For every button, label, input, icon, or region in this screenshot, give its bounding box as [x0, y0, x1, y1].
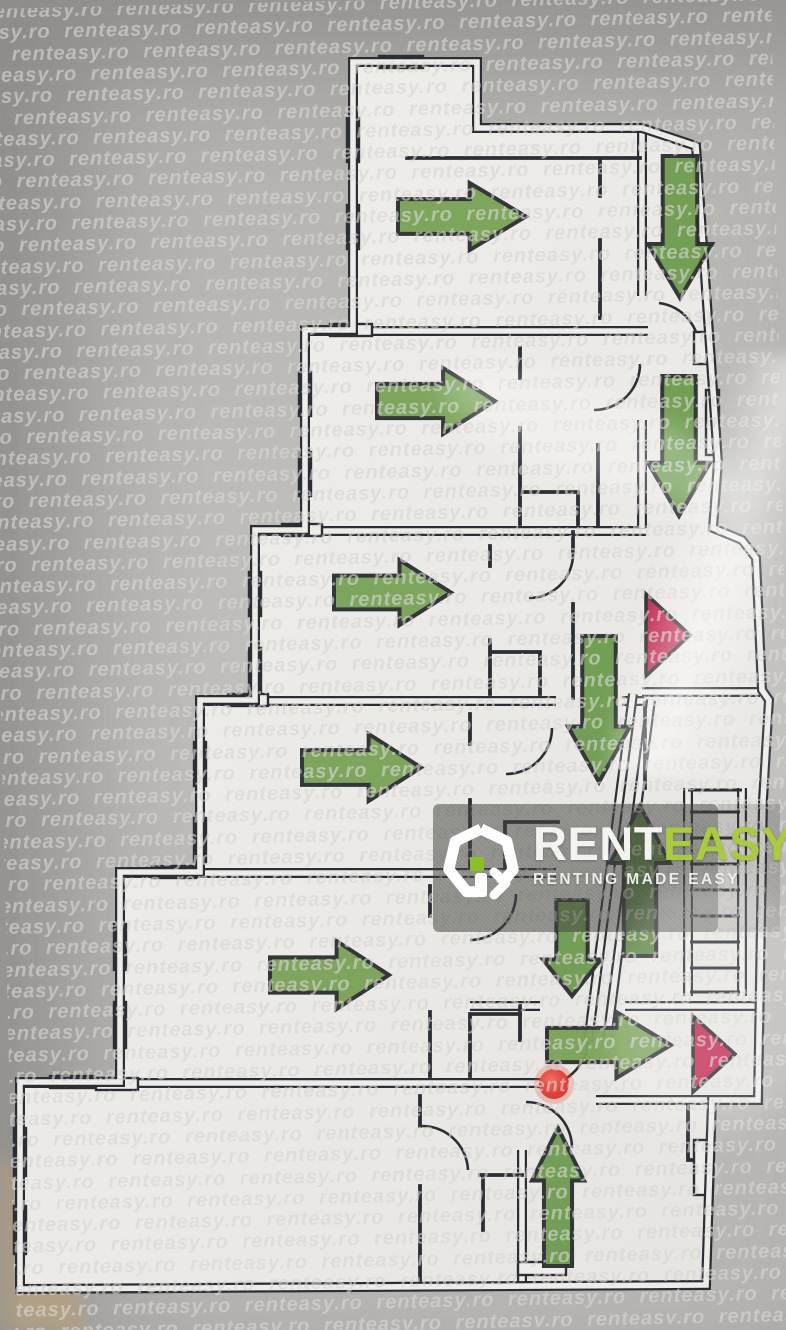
evacuation-plan-photo: renteasy.ro renteasy.ro renteasy.ro rent…	[0, 0, 786, 1330]
brand-wordmark: RENTEASY	[533, 820, 786, 867]
you-are-here-dot	[539, 1069, 569, 1099]
house-ring-icon	[441, 822, 523, 914]
logo-green-square	[470, 857, 484, 871]
logo-chevron	[494, 872, 506, 895]
brand-rent: RENT	[533, 817, 663, 870]
brand-easy: EASY	[663, 817, 786, 870]
